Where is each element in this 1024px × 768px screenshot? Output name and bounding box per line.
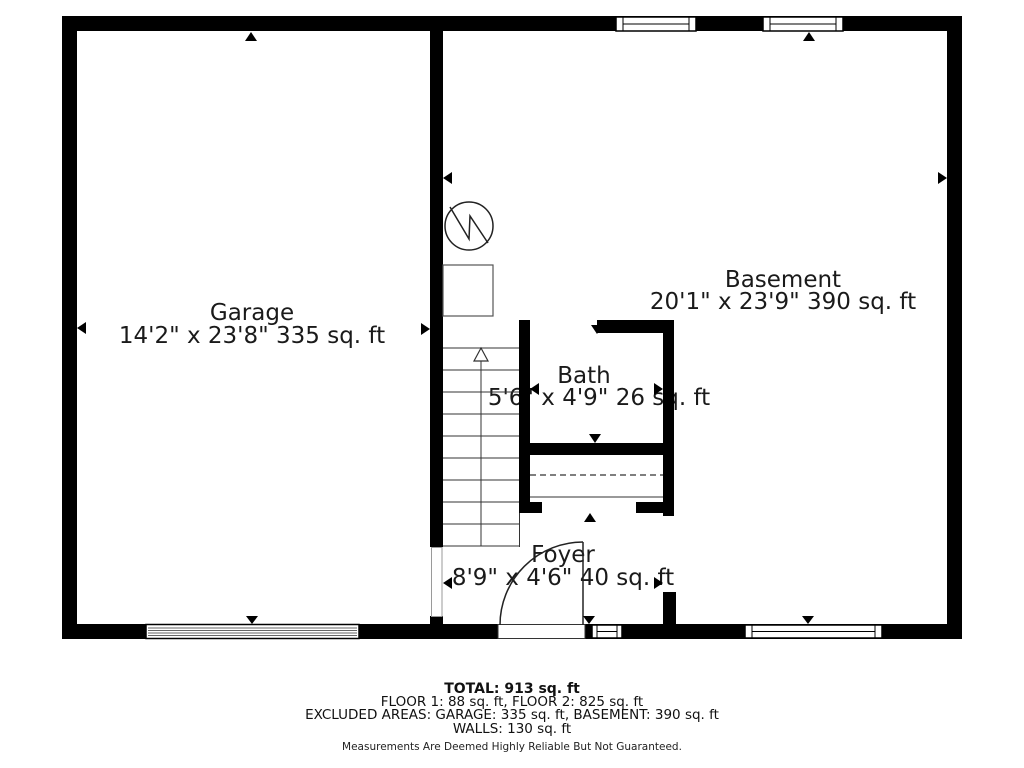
bath-dimensions: 5'6" x 4'9" 26 sq. ft xyxy=(488,386,710,410)
basement-dimensions: 20'1" x 23'9" 390 sq. ft xyxy=(650,290,916,314)
garage-dimensions: 14'2" x 23'8" 335 sq. ft xyxy=(119,324,385,348)
floor-plan-page: Garage 14'2" x 23'8" 335 sq. ft Basement… xyxy=(0,0,1024,768)
foyer-dimensions: 8'9" x 4'6" 40 sq. ft xyxy=(452,566,674,590)
area-summary: TOTAL: 913 sq. ft FLOOR 1: 88 sq. ft, FL… xyxy=(0,683,1024,753)
garage-label: Garage xyxy=(210,301,294,325)
summary-disclaimer: Measurements Are Deemed Highly Reliable … xyxy=(0,742,1024,753)
summary-walls: WALLS: 130 sq. ft xyxy=(0,723,1024,736)
room-labels-layer: Garage 14'2" x 23'8" 335 sq. ft Basement… xyxy=(0,0,1024,768)
foyer-label: Foyer xyxy=(531,543,595,567)
